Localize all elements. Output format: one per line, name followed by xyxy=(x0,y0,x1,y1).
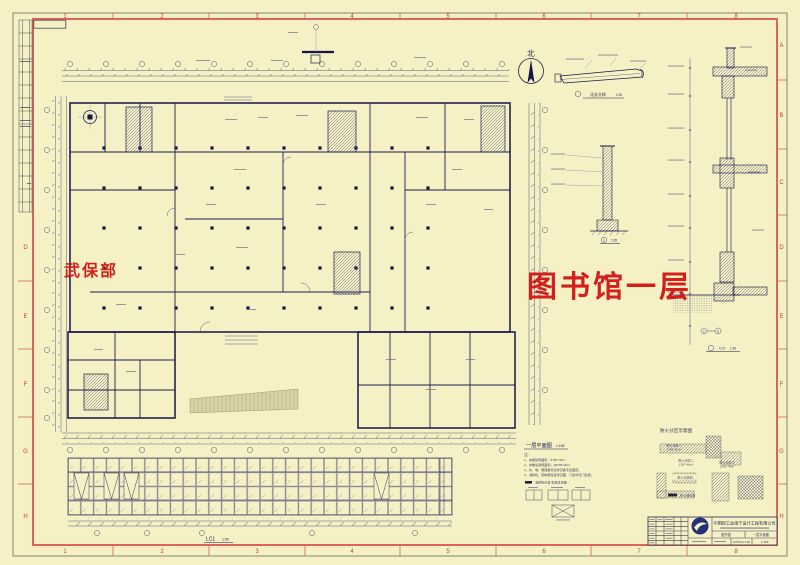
wall-section-detail-mid: 3 1:20 xyxy=(551,146,628,244)
detail-title: C-D xyxy=(719,346,725,350)
elevation-title: LC1 xyxy=(206,537,215,543)
plan-scale: 1:150 xyxy=(556,444,565,448)
ref-right: H xyxy=(779,514,783,520)
watermark-department: 武保部 xyxy=(64,257,118,281)
note-line: 2、本楼总建筑面积：26795.29m² xyxy=(524,462,570,467)
ref-bottom: 2 xyxy=(160,549,164,555)
register-strip xyxy=(19,20,32,212)
note-line: 3、水、电、暖通各管道详见各专业图纸。 xyxy=(524,467,581,472)
ref-right: D xyxy=(779,245,784,251)
dim-ticks xyxy=(62,68,509,76)
note-line: 1、本层建筑面积：5756.79m² xyxy=(524,457,565,462)
detail-scale: 1:20 xyxy=(730,346,736,350)
ref-right: C xyxy=(779,180,784,186)
north-needle xyxy=(528,60,535,84)
ref-left: G xyxy=(23,449,28,455)
company-name: 中国轻工业南宁设计工程有限公司 xyxy=(713,520,775,526)
column-detail xyxy=(78,105,102,129)
ref-bottom: 8 xyxy=(734,549,738,555)
flashing-detail: 泛水大样 1:20 xyxy=(555,55,646,98)
ref-bottom: 7 xyxy=(637,549,641,555)
ref-right: B xyxy=(779,113,783,119)
company-logo xyxy=(692,518,709,535)
plan-notes: 一层平面图 1:150 注: 1、本层建筑面积：5756.79m² 2、本楼总建… xyxy=(524,442,594,520)
drawing-scale: 1:150 xyxy=(761,540,769,544)
section-marks: C D xyxy=(701,328,721,334)
note-line: 4、消防栓、配电箱位置详见图，门窗详见门窗表。 xyxy=(524,472,594,477)
notes-heading: 注: xyxy=(524,452,529,457)
ref-bottom: 5 xyxy=(446,549,450,555)
dim-ticks xyxy=(62,435,516,443)
watermark-drawing-title: 图书馆一层 xyxy=(527,262,692,306)
fire-zone-diagram: 防火分区示意图 防火分区一 1249.32m² 防火分区二 1337.46m² … xyxy=(657,427,763,501)
detail-title: 泛水大样 xyxy=(590,91,606,97)
title-block: 中国轻工业南宁设计工程有限公司 图书馆 一层平面图 W757SJ-1-05 1:… xyxy=(648,517,777,545)
detail-scale: 1:20 xyxy=(616,93,622,97)
drawing-sheet: 1 2 3 4 5 6 7 8 1 2 3 4 5 6 7 8 A B C D … xyxy=(0,0,800,565)
plan-title: 一层平面图 xyxy=(526,442,552,449)
north-label: 北 xyxy=(527,49,535,58)
elevation-scale: 1:50 xyxy=(222,538,229,542)
hydrant-legend-label: 消防栓位置 安装详见图 xyxy=(535,480,567,485)
mark-d: D xyxy=(717,329,720,333)
ref-right: G xyxy=(779,449,784,455)
floor-plan xyxy=(44,25,547,453)
drawing-title: 一层平面图 xyxy=(753,532,769,537)
top-mini-detail xyxy=(302,25,334,63)
ref-bottom: 3 xyxy=(255,549,259,555)
detail-number: 3 xyxy=(603,238,605,242)
entrance-ramp xyxy=(190,389,298,413)
column-grid xyxy=(88,132,448,312)
window-type-symbols xyxy=(526,490,590,517)
firewall-legend-swatch xyxy=(668,494,677,497)
window-elevation: LC1 1:50 xyxy=(68,458,452,543)
certificate-line xyxy=(720,528,769,529)
ref-right: A xyxy=(779,43,783,49)
ref-left: F xyxy=(24,382,28,388)
ref-right: E xyxy=(779,314,783,320)
ref-left: H xyxy=(23,514,27,520)
ref-left: D xyxy=(23,245,28,251)
fire-diagram-title: 防火分区示意图 xyxy=(660,427,693,434)
zone-area: 1337.46m² xyxy=(679,463,694,467)
hydrant-legend-swatch xyxy=(525,481,532,484)
drawing-number: W757SJ-1-05 xyxy=(733,540,751,544)
firewall-legend-label: 防火墙位置 xyxy=(680,493,695,498)
zone-area: 1141.79m² xyxy=(720,465,735,469)
corner-label-box xyxy=(34,20,66,28)
mark-c: C xyxy=(703,329,706,333)
zone-area: 1249.32m² xyxy=(667,448,682,452)
ref-left: E xyxy=(23,314,27,320)
ref-bottom: 6 xyxy=(542,549,546,555)
project-name: 图书馆 xyxy=(721,532,731,537)
detail-scale: 1:20 xyxy=(611,238,617,242)
ref-bottom: 1 xyxy=(63,549,67,555)
ref-bottom: 4 xyxy=(350,549,354,555)
zone-label: 防火分区四 xyxy=(677,475,692,480)
dim-ticks xyxy=(52,96,60,432)
ref-right: F xyxy=(780,382,784,388)
north-arrow: 北 xyxy=(519,49,544,84)
